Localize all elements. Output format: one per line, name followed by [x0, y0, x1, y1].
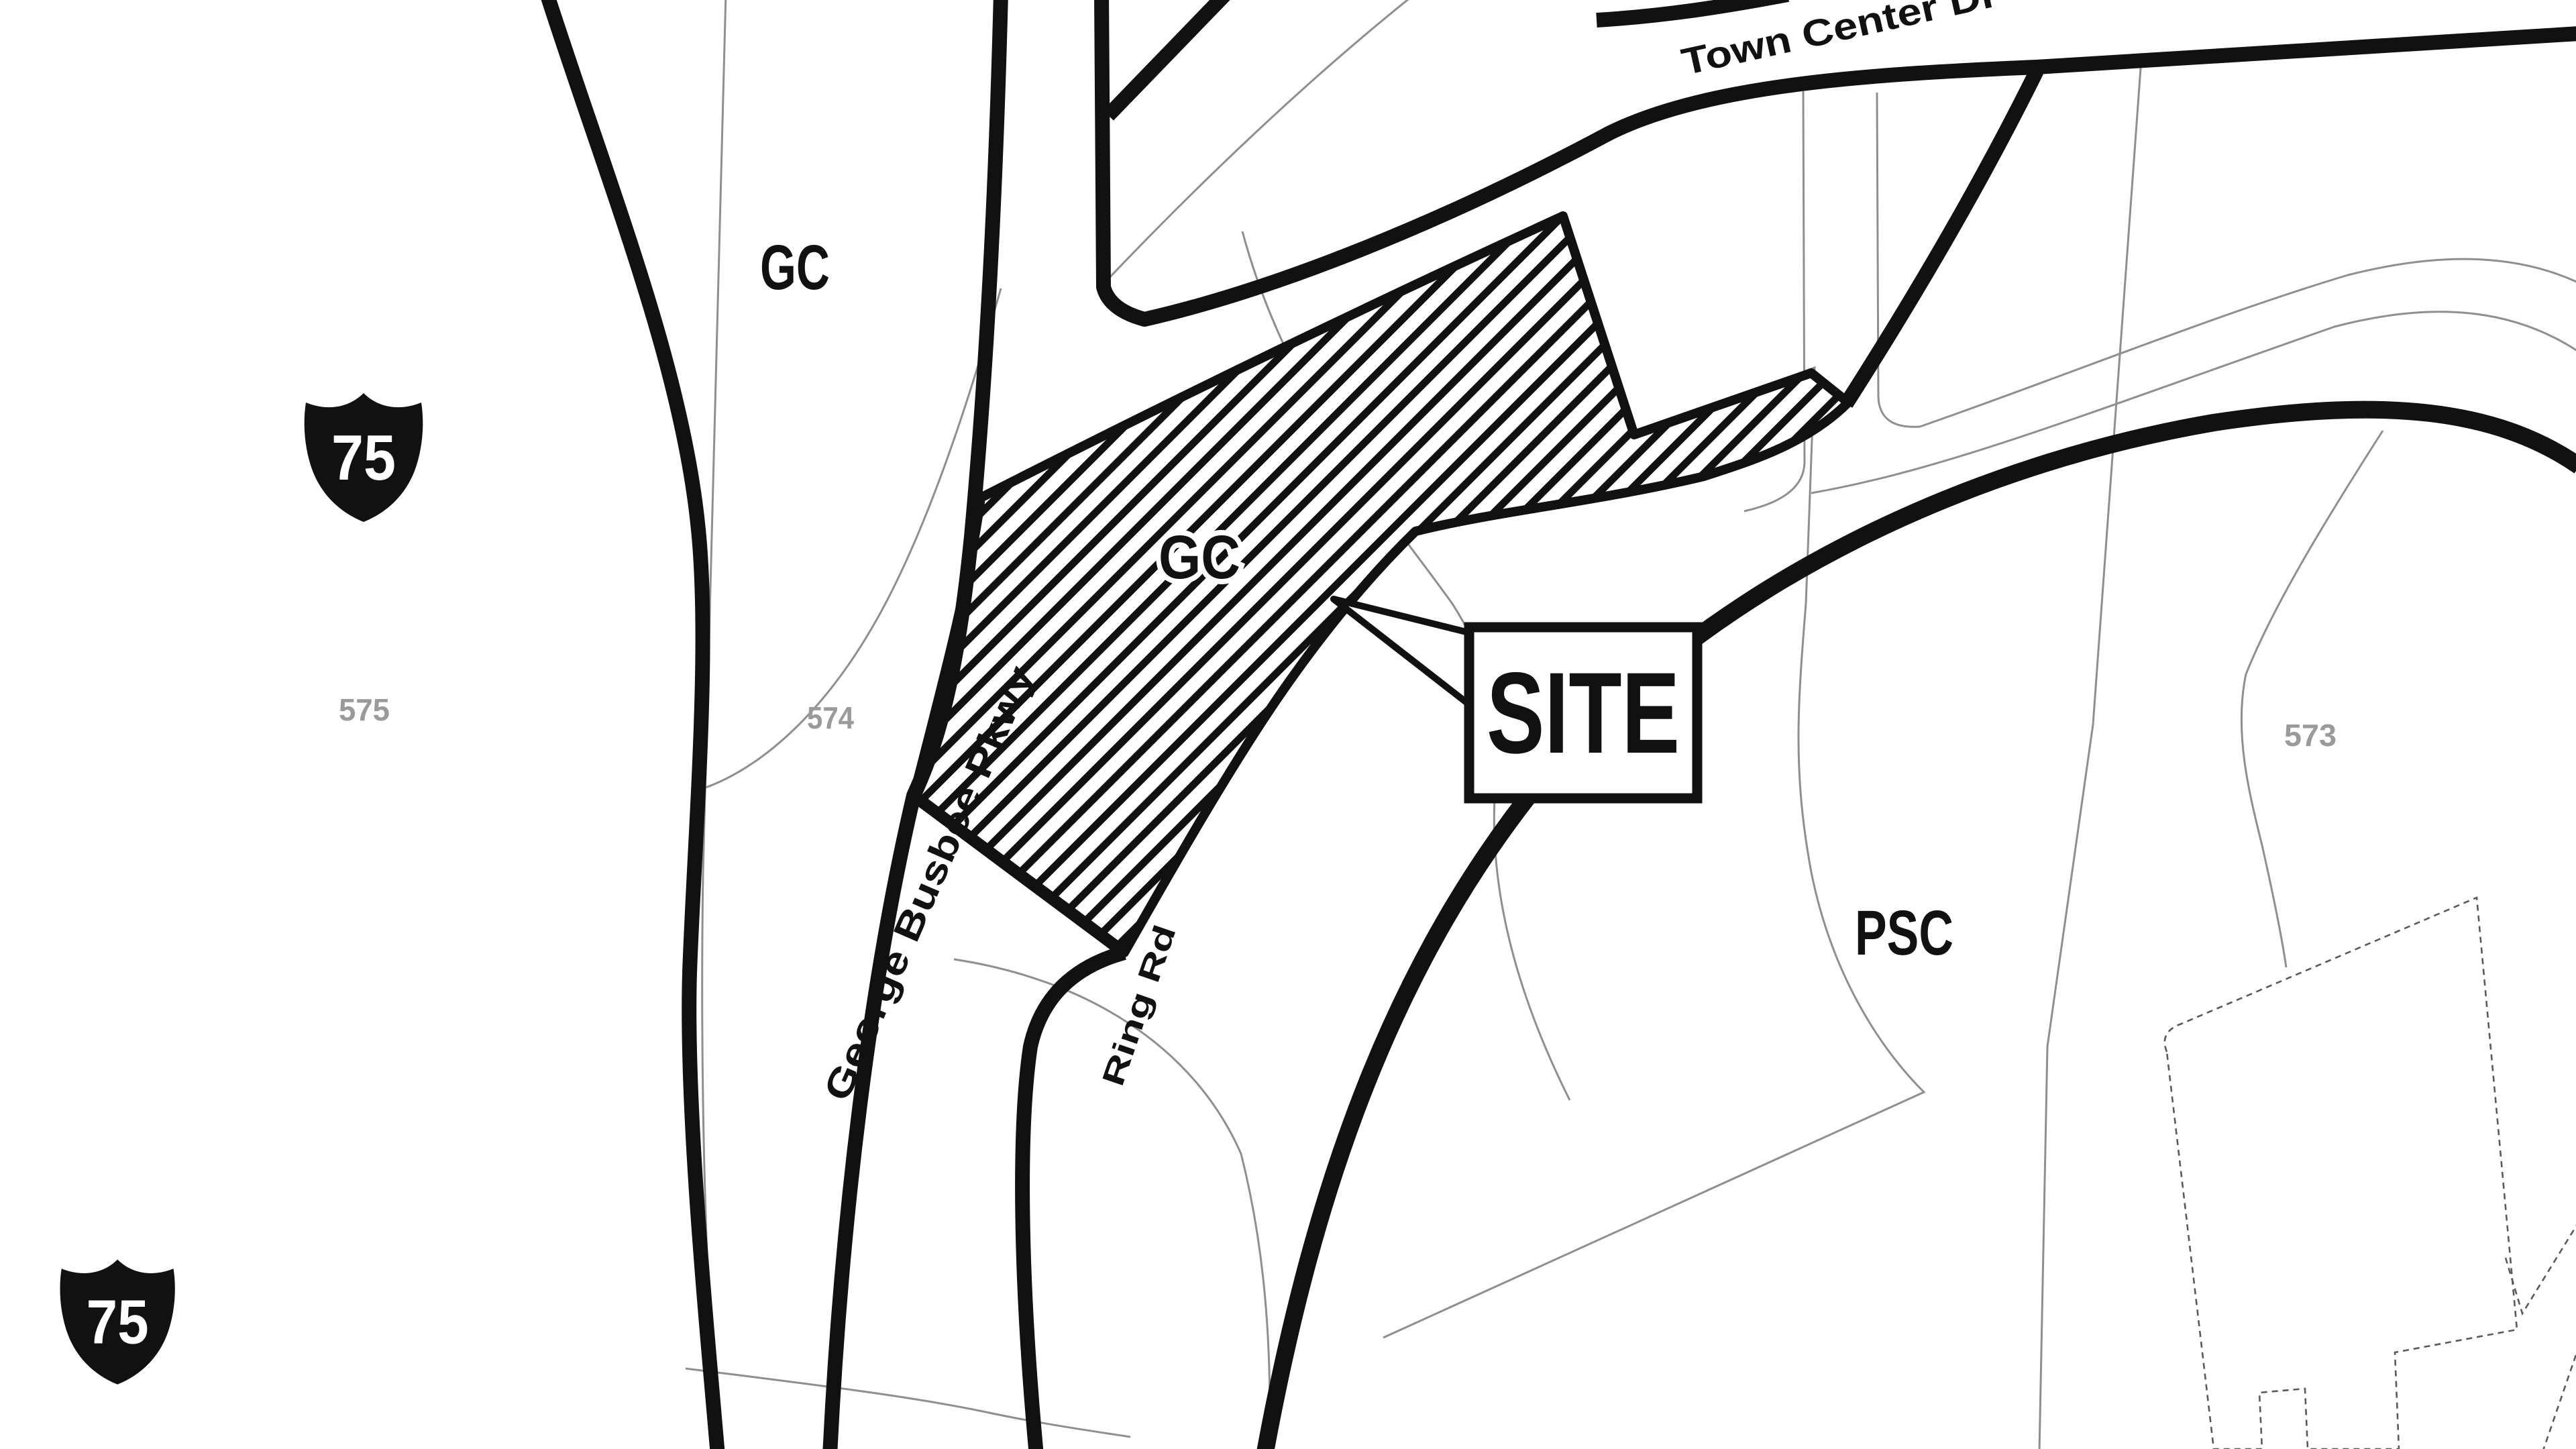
zone-label-gc-site: GC: [1159, 523, 1240, 592]
interstate-75-shield-top-number: 75: [331, 422, 396, 494]
parcel-number-573: 573: [2284, 718, 2337, 753]
parcel-number-575: 575: [339, 692, 390, 727]
site-callout-label: SITE: [1487, 649, 1680, 777]
zone-label-psc: PSC: [1855, 898, 1953, 969]
parcel-number-574: 574: [807, 700, 854, 735]
site-location-map: SITE Town Center Dr George Busbee Pkwy R…: [0, 0, 2576, 1449]
zone-label-gc-upper: GC: [760, 232, 830, 303]
map-canvas: SITE Town Center Dr George Busbee Pkwy R…: [0, 0, 2576, 1449]
interstate-75-shield-bottom-number: 75: [87, 1287, 149, 1357]
